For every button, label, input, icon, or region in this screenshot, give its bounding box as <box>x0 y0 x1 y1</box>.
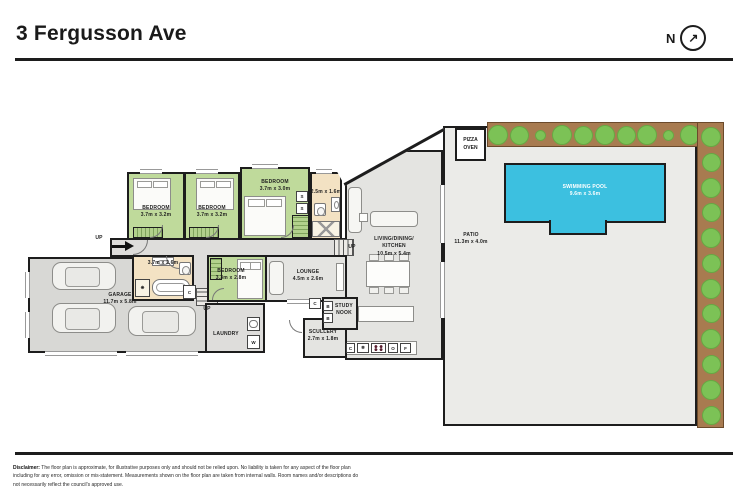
bush-icon <box>701 178 721 198</box>
dining-chair-icon <box>399 287 409 294</box>
north-arrow-icon: ↗ <box>680 25 706 51</box>
sofa-icon <box>348 187 362 233</box>
vanity-sink-icon <box>331 197 340 212</box>
footer-divider <box>15 452 733 455</box>
garden-bed-top <box>487 122 699 147</box>
garage-door <box>45 351 117 356</box>
washer-marker: W <box>247 335 260 349</box>
bush-icon <box>510 126 529 145</box>
north-indicator: N ↗ <box>666 25 706 51</box>
bedroom-4-label: BEDROOM 3.3m x 2.8m <box>203 268 259 283</box>
bush-icon <box>701 329 721 349</box>
window <box>316 169 332 174</box>
shower-rose-icon: ❋ <box>135 279 150 297</box>
dining-chair-icon <box>384 287 394 294</box>
window <box>25 272 30 298</box>
bush-icon <box>488 125 508 145</box>
garage-label: GARAGE 11.7m x 5.8m <box>75 292 165 307</box>
tv-unit-icon <box>336 263 344 291</box>
bedroom-1-label: BEDROOM 3.7m x 3.2m <box>127 205 185 220</box>
shelf-marker: S <box>296 203 308 214</box>
lounge-label: LOUNGE 4.5m x 2.6m <box>280 269 336 284</box>
bathroom-label: 3.7m x 2.6m <box>134 260 192 267</box>
pizza-oven: PIZZA OVEN <box>455 128 486 161</box>
shelf-marker: S <box>296 191 308 202</box>
dining-table-icon <box>366 261 410 287</box>
closet-marker: C <box>183 285 196 299</box>
bush-icon <box>663 130 674 141</box>
scullery-label: SCULLERY 2.7m x 1.8m <box>299 329 347 344</box>
page-title: 3 Fergusson Ave <box>16 22 187 46</box>
patio-label: PATIO 11.3m x 4.0m <box>440 232 502 247</box>
garage-door <box>126 351 198 356</box>
fridge-marker: F <box>400 343 411 353</box>
bush-icon <box>617 126 636 145</box>
bush-icon <box>574 126 593 145</box>
bookshelf-marker: B <box>323 301 333 311</box>
dining-chair-icon <box>369 287 379 294</box>
ensuite-label: 2.5m x 1.6m <box>308 189 344 196</box>
bush-icon <box>701 279 721 299</box>
floor-plan: PIZZA OVEN SWIMMING POOL 9.6m x 3.6m PAT… <box>0 60 750 450</box>
pizza-oven-label: OVEN <box>463 145 477 153</box>
window <box>140 169 162 174</box>
entry-arrow-icon <box>112 245 125 248</box>
bush-icon <box>702 406 721 425</box>
bush-icon <box>535 130 546 141</box>
oven-marker: O <box>388 343 398 353</box>
closet-marker: C <box>309 298 321 309</box>
bush-icon <box>702 304 721 323</box>
side-table-icon <box>359 213 368 222</box>
patio-slider-door <box>440 262 445 318</box>
disclaimer: Disclaimer: The floor plan is approximat… <box>13 464 361 489</box>
pool-label: SWIMMING POOL 9.6m x 3.6m <box>504 184 666 199</box>
window <box>252 164 278 169</box>
bookshelf-marker: B <box>323 313 333 323</box>
window <box>196 169 218 174</box>
garden-bed-right <box>697 122 724 428</box>
bush-icon <box>701 380 721 400</box>
laundry-tub-icon <box>247 317 260 331</box>
bush-icon <box>702 153 721 172</box>
pool-step <box>549 220 607 235</box>
bush-icon <box>595 125 615 145</box>
window <box>25 312 30 338</box>
bush-icon <box>701 127 721 147</box>
bush-icon <box>702 355 721 374</box>
up-label: UP <box>345 244 359 251</box>
wardrobe-icon <box>292 215 309 238</box>
bush-icon <box>702 254 721 273</box>
fridge-freezer-icon: ❄ <box>357 343 369 353</box>
laundry-label: LAUNDRY <box>206 331 246 338</box>
bedroom-2-label: BEDROOM 3.7m x 3.2m <box>184 205 240 220</box>
sofa-icon <box>370 211 418 227</box>
up-label: UP <box>196 306 218 313</box>
car-icon <box>52 303 116 333</box>
bush-icon <box>701 228 721 248</box>
cupboard-marker: C <box>346 343 355 353</box>
study-nook-label: STUDY NOOK <box>330 303 358 318</box>
entry-arrow-icon <box>125 241 134 251</box>
disclaimer-label: Disclaimer: <box>13 465 40 471</box>
living-kitchen-label: LIVING/DINING/ KITCHEN 10.5m x 5.4m <box>356 236 432 258</box>
bush-icon <box>552 125 572 145</box>
toilet-icon <box>314 203 326 216</box>
disclaimer-text: The floor plan is approximate, for illus… <box>13 465 358 488</box>
car-icon <box>128 306 196 336</box>
car-icon <box>52 262 116 290</box>
up-label: UP <box>90 235 108 242</box>
cooktop-icon <box>371 343 386 353</box>
shower-icon <box>312 221 340 237</box>
bed-icon <box>244 196 286 236</box>
bush-icon <box>637 125 657 145</box>
pizza-oven-label: PIZZA <box>463 137 477 145</box>
north-label: N <box>666 31 675 46</box>
bush-icon <box>702 203 721 222</box>
kitchen-island-icon <box>358 306 414 322</box>
